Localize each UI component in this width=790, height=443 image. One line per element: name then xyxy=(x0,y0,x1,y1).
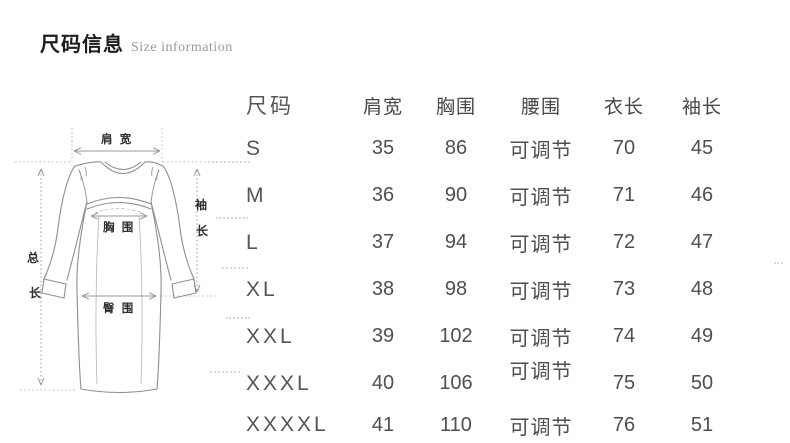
length-cell: 75 xyxy=(590,360,658,407)
size-cell: S xyxy=(240,125,346,172)
bust-cell: 102 xyxy=(420,313,492,360)
waist-cell: 可调节 xyxy=(492,172,590,219)
bust-arrow xyxy=(91,213,147,219)
sleeve-cell: 48 xyxy=(658,266,746,313)
bust-cell: 98 xyxy=(420,266,492,313)
waist-cell: 可调节 xyxy=(492,125,590,172)
bust-cell: 94 xyxy=(420,219,492,266)
size-cell: XXXXL xyxy=(240,407,346,443)
dress-diagram-svg: 总 长 袖 长 肩 宽 xyxy=(15,112,235,402)
shoulder-cell: 36 xyxy=(346,172,420,219)
length-cell: 76 xyxy=(590,407,658,443)
shoulder-cell: 41 xyxy=(346,407,420,443)
size-cell: XXXL xyxy=(240,360,346,407)
col-header-shoulder: 肩宽 xyxy=(346,85,420,125)
col-header-length: 衣长 xyxy=(590,85,658,125)
page-title-row: 尺码信息Size information xyxy=(40,28,233,57)
sleeve-length-label-2: 长 xyxy=(196,223,209,238)
shoulder-cell: 38 xyxy=(346,266,420,313)
length-cell: 74 xyxy=(590,313,658,360)
size-table: 尺码 肩宽 胸围 腰围 衣长 袖长 S 35 86 可调节 70 45 M 36… xyxy=(240,85,746,443)
artifact-dash xyxy=(774,262,783,264)
bust-cell: 86 xyxy=(420,125,492,172)
sleeve-cell: 50 xyxy=(658,360,746,407)
col-header-bust: 胸围 xyxy=(420,85,492,125)
shoulder-width-label: 肩 宽 xyxy=(101,132,133,146)
bust-cell: 106 xyxy=(420,360,492,407)
sleeve-cell: 45 xyxy=(658,125,746,172)
artifact-dash xyxy=(210,371,240,373)
waist-cell: 可调节 xyxy=(492,407,590,443)
waist-cell-text: 可调节 xyxy=(510,355,573,384)
size-cell: M xyxy=(240,172,346,219)
waist-cell: 可调节 xyxy=(492,360,590,407)
total-length-arrow xyxy=(38,169,44,385)
bust-label: 胸 围 xyxy=(103,220,135,234)
sleeve-length-label-1: 袖 xyxy=(195,197,207,212)
length-cell: 73 xyxy=(590,266,658,313)
length-cell: 72 xyxy=(590,219,658,266)
hip-arrow xyxy=(82,293,156,299)
sleeve-cell: 49 xyxy=(658,313,746,360)
length-cell: 71 xyxy=(590,172,658,219)
page-subtitle: Size information xyxy=(131,40,233,55)
waist-cell: 可调节 xyxy=(492,219,590,266)
total-length-label-1: 总 xyxy=(27,250,39,265)
page-title: 尺码信息 xyxy=(40,34,124,56)
sleeve-cell: 47 xyxy=(658,219,746,266)
bust-cell: 90 xyxy=(420,172,492,219)
waist-cell: 可调节 xyxy=(492,313,590,360)
size-cell: XL xyxy=(240,266,346,313)
shoulder-width-arrow xyxy=(74,148,160,154)
guide-lines xyxy=(15,128,235,390)
shoulder-cell: 39 xyxy=(346,313,420,360)
length-cell: 70 xyxy=(590,125,658,172)
bust-cell: 110 xyxy=(420,407,492,443)
dress-measurement-diagram: 总 长 袖 长 肩 宽 xyxy=(15,112,235,402)
hip-label: 臀 围 xyxy=(103,302,135,315)
dress-outline xyxy=(42,162,196,393)
sleeve-cell: 51 xyxy=(658,407,746,443)
shoulder-cell: 37 xyxy=(346,219,420,266)
total-length-label-2: 长 xyxy=(29,285,42,300)
col-header-waist: 腰围 xyxy=(492,85,590,125)
sleeve-cell: 46 xyxy=(658,172,746,219)
size-cell: L xyxy=(240,219,346,266)
shoulder-cell: 40 xyxy=(346,360,420,407)
shoulder-cell: 35 xyxy=(346,125,420,172)
waist-cell: 可调节 xyxy=(492,266,590,313)
col-header-sleeve: 袖长 xyxy=(658,85,746,125)
size-cell: XXL xyxy=(240,313,346,360)
col-header-size: 尺码 xyxy=(240,85,346,125)
